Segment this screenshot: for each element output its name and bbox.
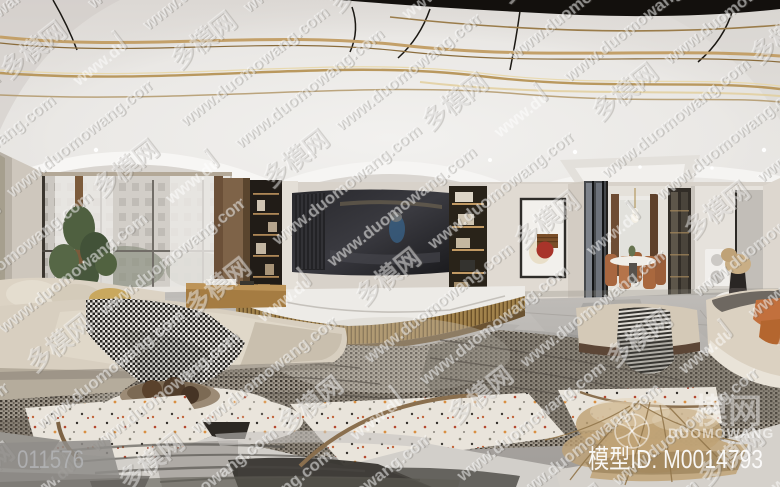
svg-text:011576: 011576 [17, 446, 84, 474]
svg-text:模型ID: M0014793: 模型ID: M0014793 [588, 444, 763, 474]
svg-text:模网: 模网 [694, 393, 762, 431]
